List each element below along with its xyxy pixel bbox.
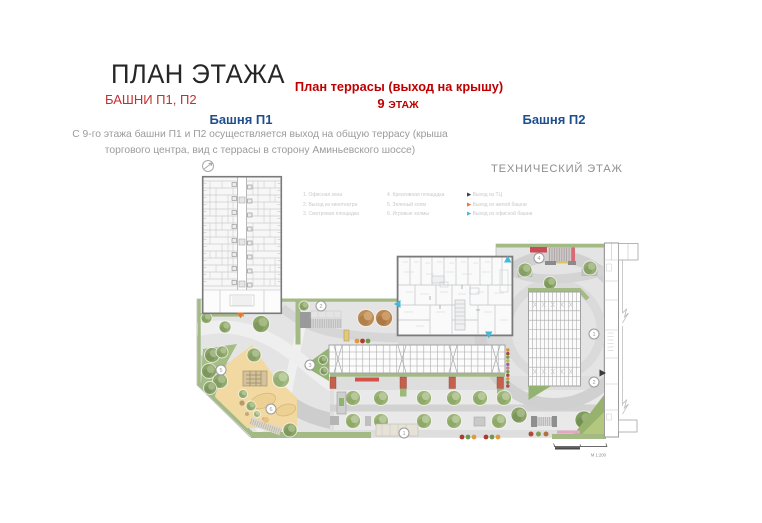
svg-text:3: 3 <box>308 363 311 369</box>
svg-text:1: 1 <box>402 431 405 437</box>
svg-text:4: 4 <box>537 256 540 262</box>
svg-text:М 1:200: М 1:200 <box>591 453 607 458</box>
svg-text:2: 2 <box>319 304 322 310</box>
svg-text:5: 5 <box>219 368 222 374</box>
svg-text:2: 2 <box>592 380 595 386</box>
svg-text:6: 6 <box>269 407 272 413</box>
svg-text:1: 1 <box>592 332 595 338</box>
